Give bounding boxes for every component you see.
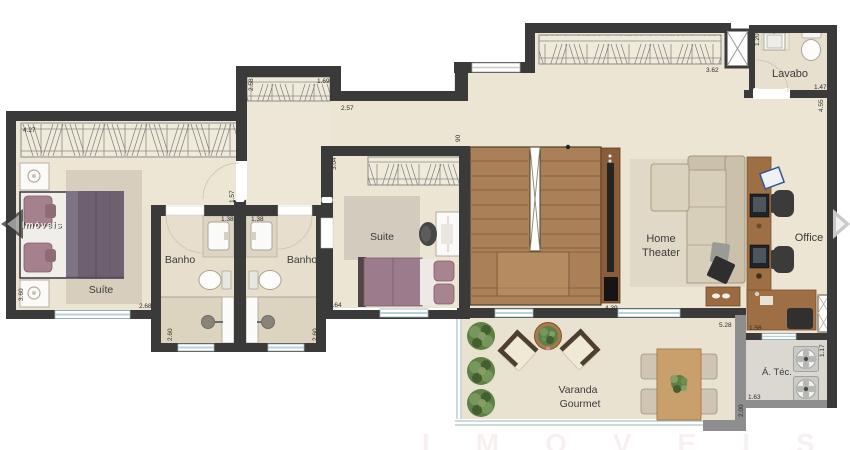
svg-text:90: 90 [455,134,462,142]
svg-text:Office: Office [795,232,824,244]
svg-text:2.00: 2.00 [738,404,745,417]
svg-text:1.17: 1.17 [819,344,826,357]
svg-text:3.04: 3.04 [331,157,338,170]
svg-text:Banho: Banho [287,254,318,266]
svg-text:Theater: Theater [642,247,680,259]
svg-text:2.64: 2.64 [329,302,342,309]
svg-text:1.57: 1.57 [229,190,236,203]
svg-text:1.56: 1.56 [749,325,762,332]
svg-text:2.60: 2.60 [312,328,319,341]
svg-text:2.58: 2.58 [248,78,255,91]
svg-text:4.55: 4.55 [818,99,825,112]
svg-text:Lavabo: Lavabo [772,68,808,80]
svg-text:2.68: 2.68 [139,303,152,310]
svg-text:4.27: 4.27 [23,127,36,134]
svg-text:Suite: Suite [370,231,394,243]
svg-text:3.60: 3.60 [18,288,25,301]
svg-text:Banho: Banho [165,254,196,266]
svg-text:IMOVEIS: IMOVEIS [422,428,850,450]
svg-text:Gourmet: Gourmet [560,398,601,410]
svg-text:Imóveis: Imóveis [22,220,63,230]
svg-text:1.38: 1.38 [251,216,264,223]
svg-text:4.39: 4.39 [605,305,618,312]
svg-text:2.57: 2.57 [341,105,354,112]
svg-text:1.69: 1.69 [317,78,330,85]
svg-text:Á. Téc.: Á. Téc. [762,367,792,378]
svg-text:1.47: 1.47 [814,84,827,91]
svg-text:Suíte: Suíte [89,284,114,296]
svg-text:1.38: 1.38 [221,216,234,223]
svg-text:2.60: 2.60 [167,328,174,341]
svg-text:5.28: 5.28 [719,322,732,329]
svg-text:Varanda: Varanda [559,384,598,396]
svg-text:1.63: 1.63 [748,394,761,401]
svg-text:1.20: 1.20 [754,33,761,46]
svg-text:3.62: 3.62 [706,67,719,74]
svg-text:Home: Home [646,233,675,245]
